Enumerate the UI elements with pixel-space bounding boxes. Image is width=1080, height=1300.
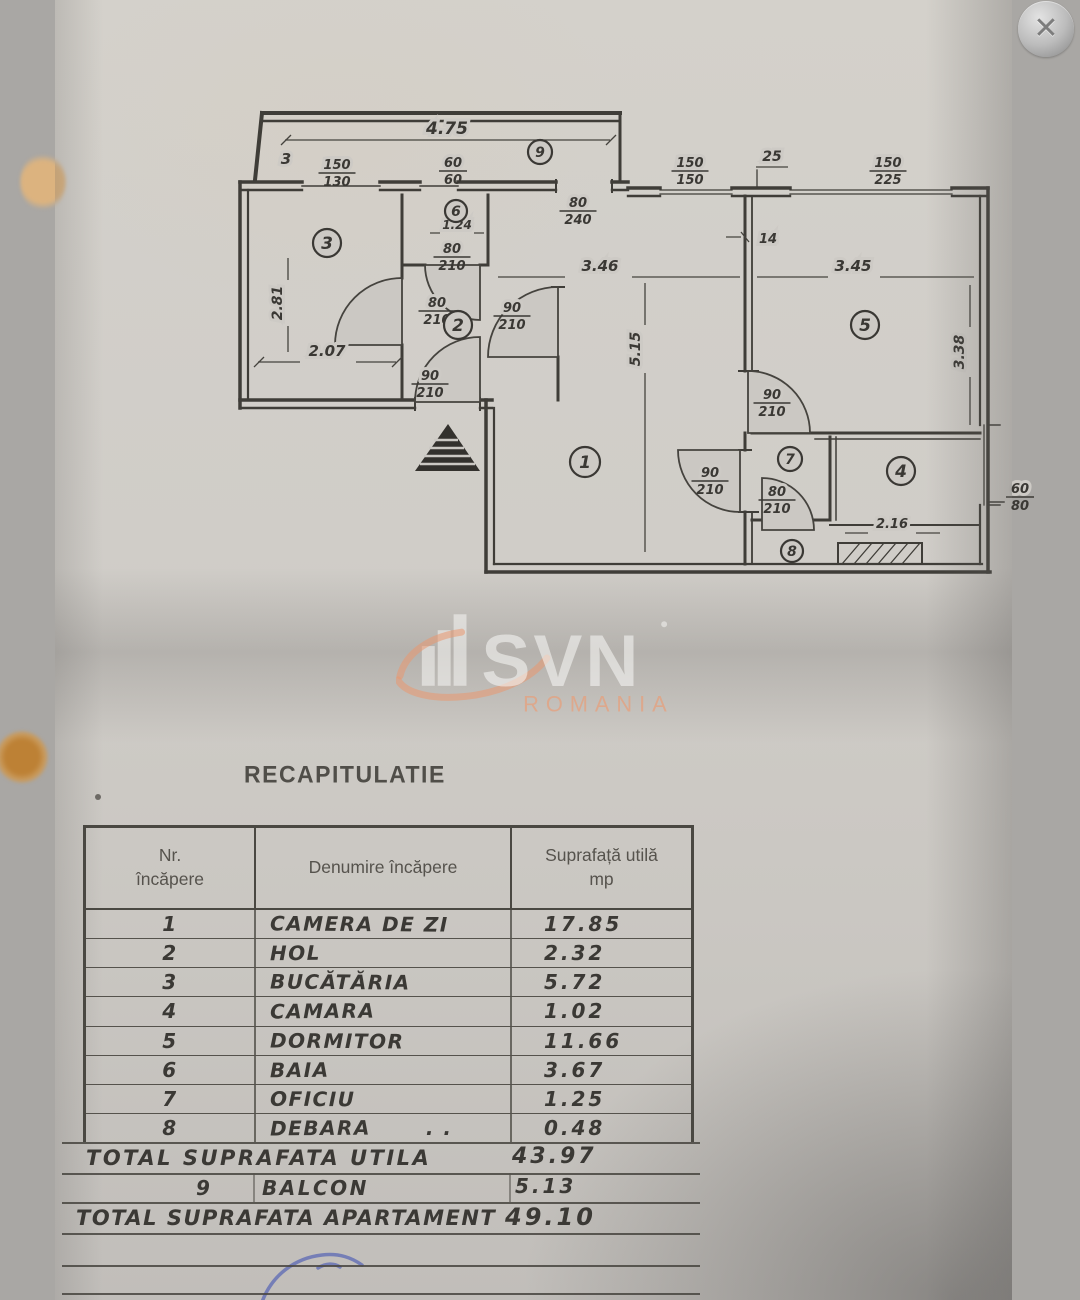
table-row: 6BAIA3.67 bbox=[86, 1055, 691, 1084]
row-nr: 1 bbox=[162, 912, 177, 936]
ruled-line bbox=[62, 1142, 700, 1144]
row-area: 3.67 bbox=[544, 1058, 605, 1082]
row-name: HOL bbox=[270, 941, 321, 965]
ruled-line bbox=[62, 1173, 700, 1175]
row-area: 1.25 bbox=[544, 1087, 605, 1111]
svg-text:60: 60 bbox=[1011, 482, 1029, 497]
row-nr: 6 bbox=[162, 1058, 177, 1082]
header-suprafata-line2: mp bbox=[589, 868, 613, 892]
row-name: CAMERA DE ZI bbox=[270, 911, 449, 936]
ruled-line bbox=[62, 1293, 700, 1295]
balcon-nr: 9 bbox=[196, 1176, 212, 1200]
ruled-line bbox=[62, 1202, 700, 1204]
recap-table-header: Nr. încăpere Denumire încăpere Suprafață… bbox=[86, 828, 691, 910]
header-nr-line2: încăpere bbox=[136, 868, 204, 892]
row-name: OFICIU bbox=[270, 1087, 356, 1112]
row-name: DORMITOR bbox=[270, 1028, 405, 1053]
ruled-line bbox=[62, 1265, 700, 1267]
row-name: BUCĂTĂRIA bbox=[270, 970, 411, 995]
header-suprafata-line1: Suprafață utilă bbox=[545, 844, 658, 868]
header-denumire-label: Denumire încăpere bbox=[309, 856, 458, 880]
row-name: BAIA bbox=[270, 1057, 330, 1082]
row-area: 0.48 bbox=[544, 1116, 605, 1140]
row-area: 1.02 bbox=[544, 999, 605, 1023]
total-apart-label: TOTAL SUPRAFATA APARTAMENT bbox=[76, 1206, 496, 1230]
recap-title: RECAPITULATIE bbox=[244, 760, 446, 789]
row-nr: 5 bbox=[162, 1029, 177, 1053]
table-row: 7OFICIU1.25 bbox=[86, 1084, 691, 1113]
svg-text:80: 80 bbox=[1011, 499, 1029, 514]
column-line-stub bbox=[253, 1173, 255, 1202]
close-icon: ✕ bbox=[1033, 14, 1058, 44]
header-suprafata: Suprafață utilă mp bbox=[510, 828, 691, 908]
table-row: 8DEBARA. .0.48 bbox=[86, 1113, 691, 1142]
row-name: DEBARA bbox=[270, 1115, 371, 1140]
total-apart-value: 49.10 bbox=[505, 1203, 596, 1231]
balcon-name: BALCON bbox=[262, 1176, 369, 1200]
row-nr: 7 bbox=[162, 1087, 177, 1111]
row-area: 11.66 bbox=[544, 1029, 622, 1053]
table-row: 2HOL2.32 bbox=[86, 938, 691, 967]
row-area: 5.72 bbox=[544, 970, 605, 994]
row-nr: 4 bbox=[162, 999, 177, 1023]
balcon-value: 5.13 bbox=[515, 1174, 576, 1198]
ink-speck bbox=[95, 794, 101, 800]
ruled-line bbox=[62, 1233, 700, 1235]
row-name: CAMARA bbox=[270, 999, 376, 1024]
total-utila-value: 43.97 bbox=[512, 1144, 597, 1169]
header-denumire: Denumire încăpere bbox=[254, 828, 510, 908]
row-nr: 2 bbox=[162, 941, 177, 965]
row-area: 17.85 bbox=[544, 912, 622, 936]
header-nr-line1: Nr. bbox=[159, 844, 181, 868]
total-utila-label: TOTAL SUPRAFATA UTILA bbox=[86, 1146, 431, 1170]
header-nr: Nr. încăpere bbox=[86, 828, 254, 908]
close-button[interactable]: ✕ bbox=[1018, 1, 1074, 57]
row-nr: 8 bbox=[162, 1116, 177, 1140]
row-area: 2.32 bbox=[544, 941, 605, 965]
column-line-stub bbox=[509, 1173, 511, 1202]
row-nr: 3 bbox=[162, 970, 177, 994]
table-row: 1CAMERA DE ZI17.85 bbox=[86, 910, 691, 938]
recap-table: Nr. încăpere Denumire încăpere Suprafață… bbox=[83, 825, 694, 1142]
table-row: 4CAMARA1.02 bbox=[86, 996, 691, 1025]
recap-table-body: 1CAMERA DE ZI17.852HOL2.323BUCĂTĂRIA5.72… bbox=[86, 910, 691, 1142]
row-dots: . . bbox=[426, 1116, 453, 1140]
table-row: 5DORMITOR11.66 bbox=[86, 1026, 691, 1055]
table-row: 3BUCĂTĂRIA5.72 bbox=[86, 967, 691, 996]
